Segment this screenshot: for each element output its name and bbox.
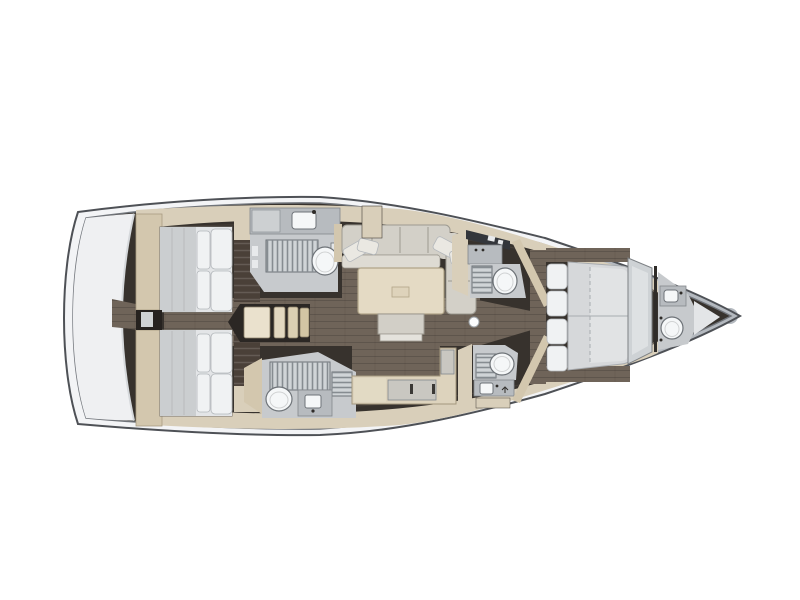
faucet <box>680 292 683 295</box>
pillow <box>211 374 232 414</box>
ottoman-base <box>380 334 422 341</box>
headboard-wall <box>136 330 162 426</box>
pillow <box>211 271 232 311</box>
faucet <box>482 249 485 252</box>
paper-holder <box>252 246 258 256</box>
ottoman <box>378 314 424 334</box>
stair-tread <box>244 307 270 338</box>
forward-cabin <box>547 258 652 371</box>
table-inlay <box>392 287 409 297</box>
aft-cabin-divider <box>136 310 162 330</box>
sofa-arm-panel <box>334 224 342 262</box>
sink <box>480 383 493 394</box>
galley-left-top <box>354 378 386 402</box>
stair-tread <box>274 307 285 338</box>
berth-foot-section <box>160 330 196 416</box>
pillow <box>197 374 210 412</box>
shower-grate-slats <box>270 362 330 390</box>
pillow <box>547 291 567 316</box>
paper-holder <box>252 260 258 268</box>
pillow <box>211 229 232 269</box>
hinge-dot <box>660 339 663 342</box>
drawer-handle <box>432 384 435 394</box>
step <box>476 398 510 408</box>
headboard-wall <box>136 214 162 310</box>
entry-wall-wedge <box>452 229 468 296</box>
aft-cabin-upper <box>136 214 260 312</box>
pillow <box>197 271 210 309</box>
mast-step <box>469 317 479 327</box>
drawer-handle <box>410 384 413 394</box>
side-locker <box>362 206 382 238</box>
entry-wall-wedge <box>458 344 472 408</box>
shower-grate-slats <box>472 266 492 293</box>
pillow <box>547 319 567 344</box>
pillow <box>197 334 210 372</box>
wardrobe-panel-inner <box>632 266 648 355</box>
faucet <box>312 210 316 214</box>
divider-hatch <box>141 312 153 327</box>
aft-cabin-lower <box>136 328 260 426</box>
yacht-floor-plan <box>0 0 800 600</box>
head-lower-mid <box>458 344 518 408</box>
shower-grate-slats <box>266 240 318 272</box>
galley-inset-top <box>441 350 454 374</box>
wet-head-upper-aft <box>250 208 344 292</box>
sink <box>292 212 316 229</box>
pillow <box>547 264 567 289</box>
vanity-cabinet <box>468 245 502 264</box>
screenshot-canvas <box>0 0 800 600</box>
pillow <box>197 231 210 269</box>
drain-grate-slats <box>332 372 352 396</box>
faucet <box>475 249 478 252</box>
head-wall <box>654 266 657 352</box>
hinge-dot <box>660 317 663 320</box>
stair-tread <box>288 307 298 338</box>
sink <box>305 395 321 408</box>
stair-tread <box>300 308 309 337</box>
companionway-steps <box>228 304 310 342</box>
berth-foot-section <box>160 227 196 312</box>
sink <box>664 290 678 302</box>
faucet <box>311 409 314 412</box>
berth-highlight <box>590 267 628 363</box>
locker <box>252 210 280 232</box>
pillow <box>211 333 232 373</box>
faucet <box>496 385 499 388</box>
toilet <box>661 317 683 339</box>
pillow <box>547 346 567 371</box>
